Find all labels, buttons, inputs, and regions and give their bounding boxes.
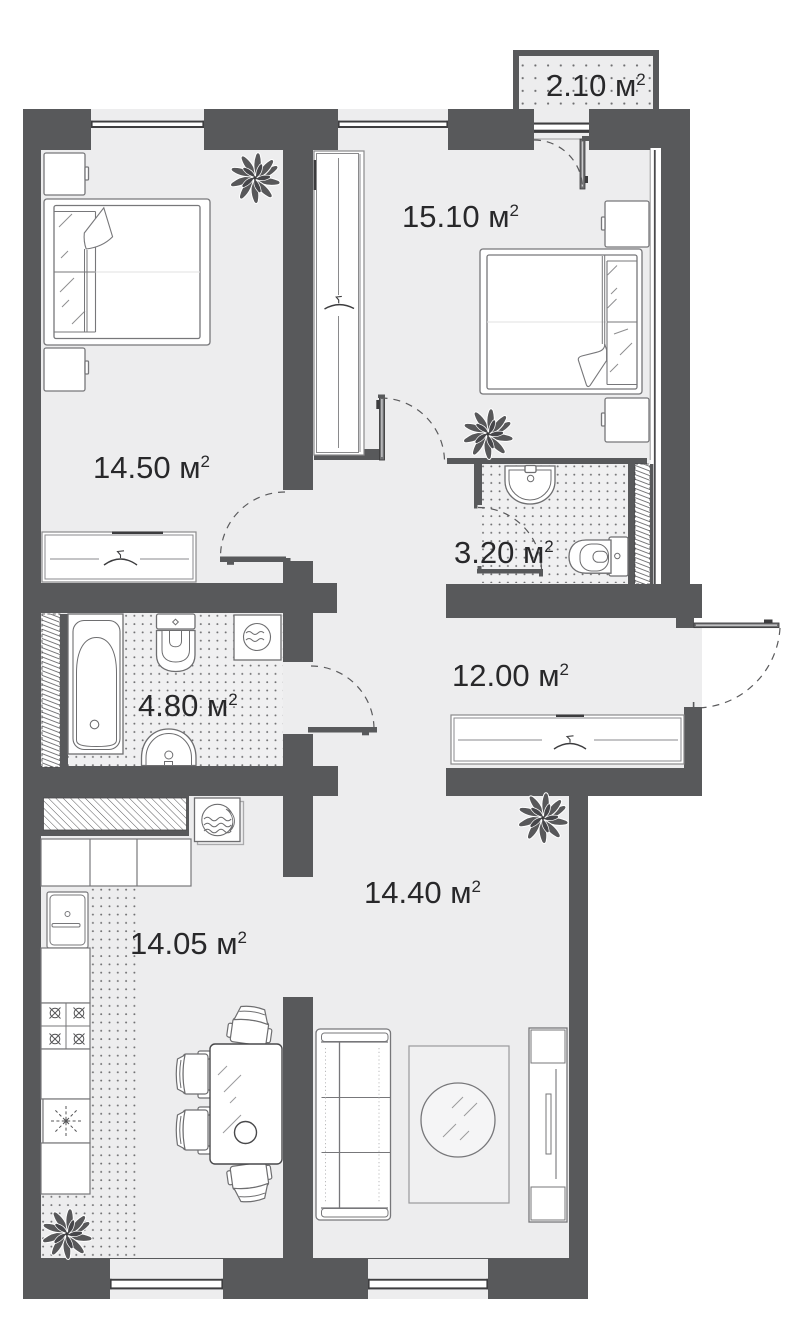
svg-text:12.00 м2: 12.00 м2	[452, 658, 569, 693]
svg-text:2.10 м2: 2.10 м2	[546, 68, 646, 103]
svg-text:14.05 м2: 14.05 м2	[130, 926, 247, 961]
svg-text:4.80 м2: 4.80 м2	[138, 688, 238, 723]
svg-text:15.10 м2: 15.10 м2	[402, 199, 519, 234]
svg-text:14.50 м2: 14.50 м2	[93, 450, 210, 485]
svg-text:14.40 м2: 14.40 м2	[364, 875, 481, 910]
